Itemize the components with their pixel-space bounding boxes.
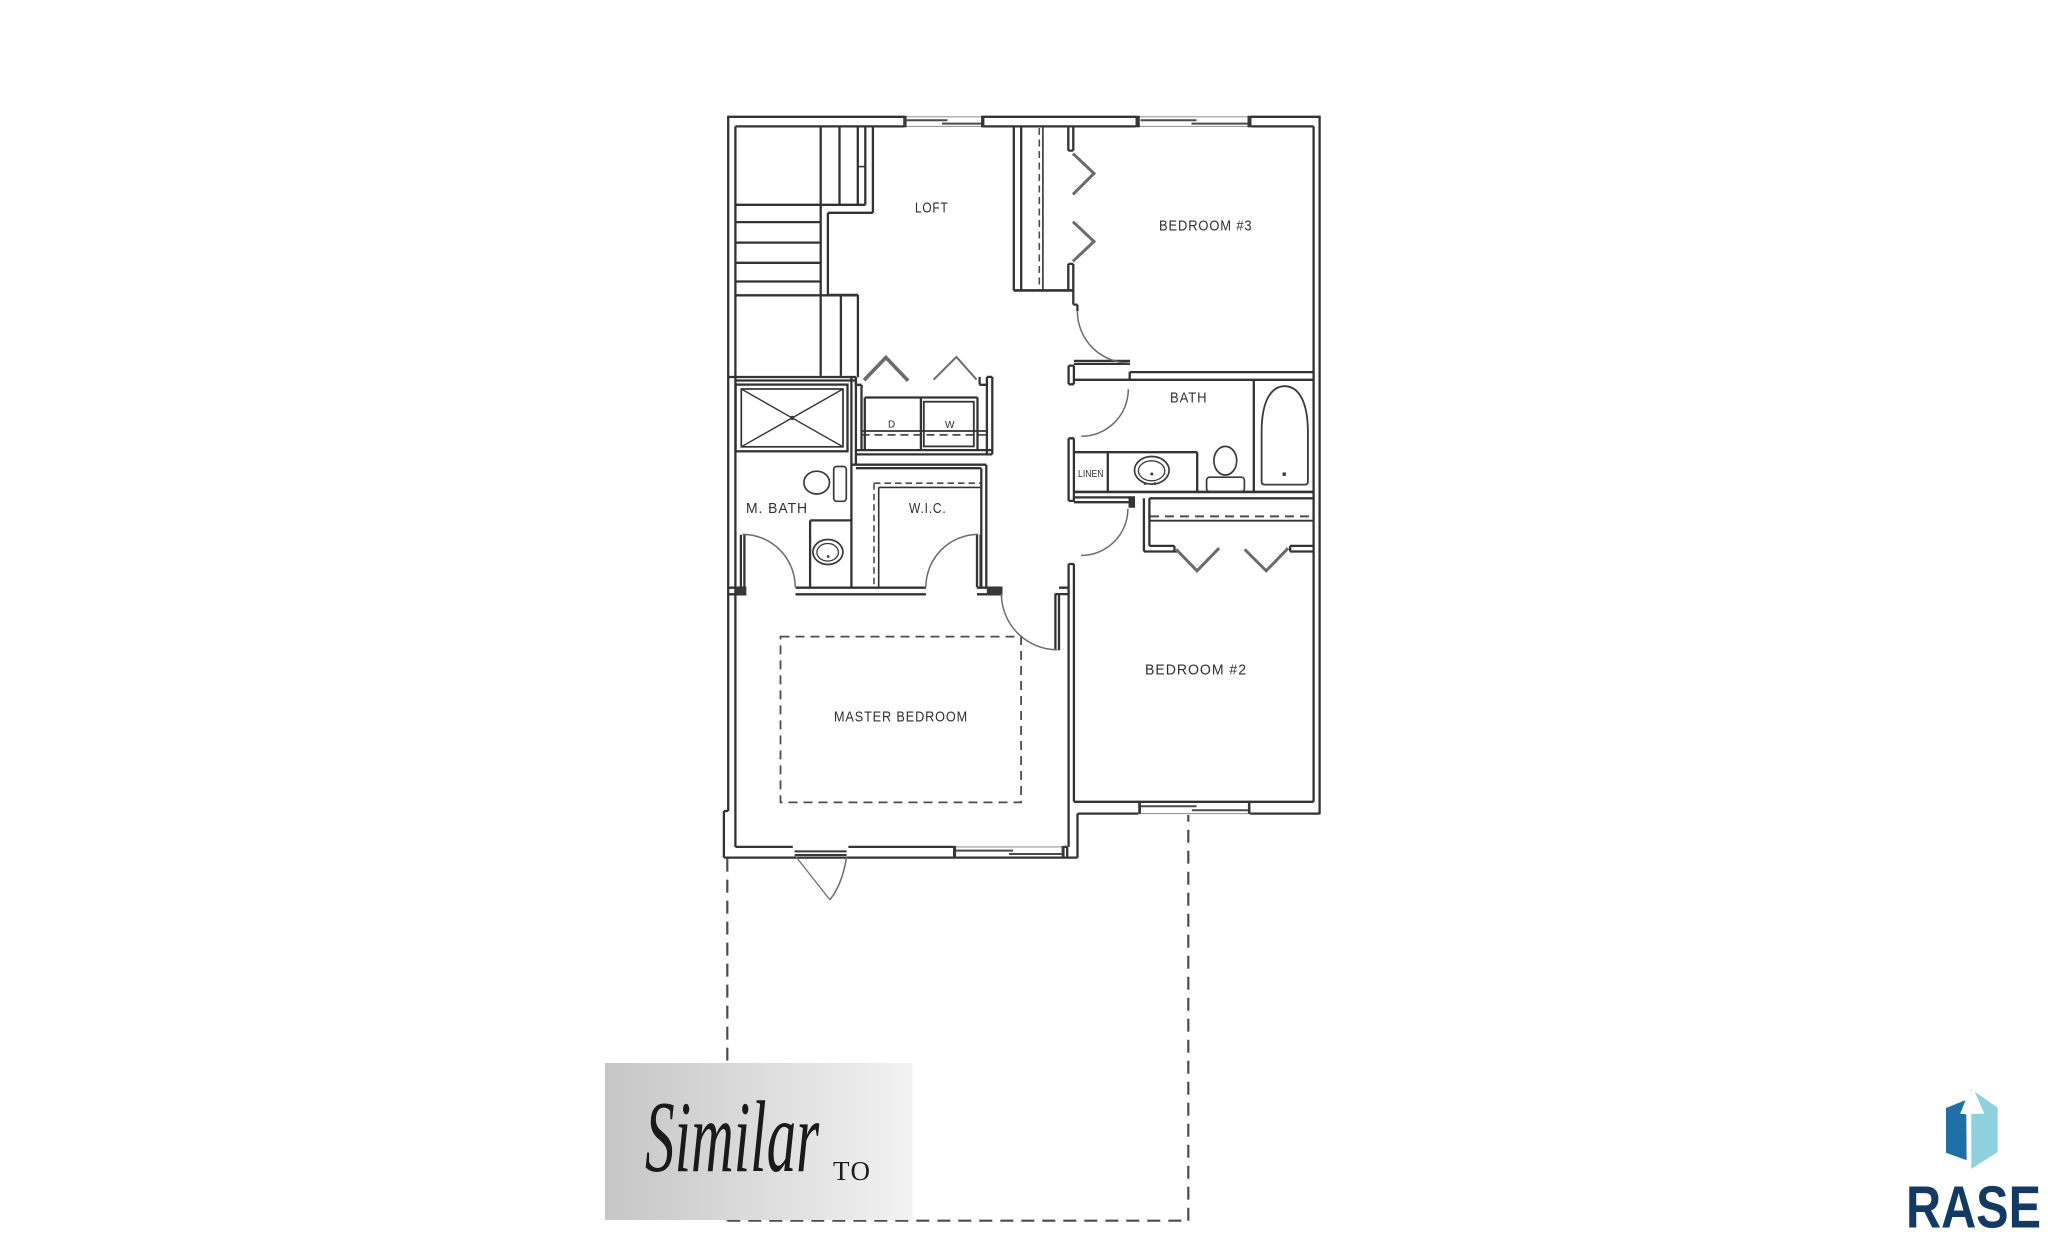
svg-text:W.I.C.: W.I.C. [909, 501, 947, 517]
svg-text:LINEN: LINEN [1078, 469, 1104, 480]
svg-text:RASE: RASE [1906, 1175, 2041, 1235]
svg-text:TO: TO [833, 1156, 872, 1186]
svg-text:LOFT: LOFT [915, 201, 949, 217]
svg-text:MASTER BEDROOM: MASTER BEDROOM [834, 710, 968, 726]
svg-text:D: D [888, 420, 895, 431]
svg-text:W: W [945, 420, 955, 431]
svg-text:BEDROOM #3: BEDROOM #3 [1159, 219, 1253, 235]
svg-text:BATH: BATH [1170, 391, 1208, 407]
svg-text:Similar: Similar [645, 1082, 820, 1195]
svg-text:M. BATH: M. BATH [746, 501, 808, 517]
svg-text:BEDROOM #2: BEDROOM #2 [1145, 663, 1247, 679]
